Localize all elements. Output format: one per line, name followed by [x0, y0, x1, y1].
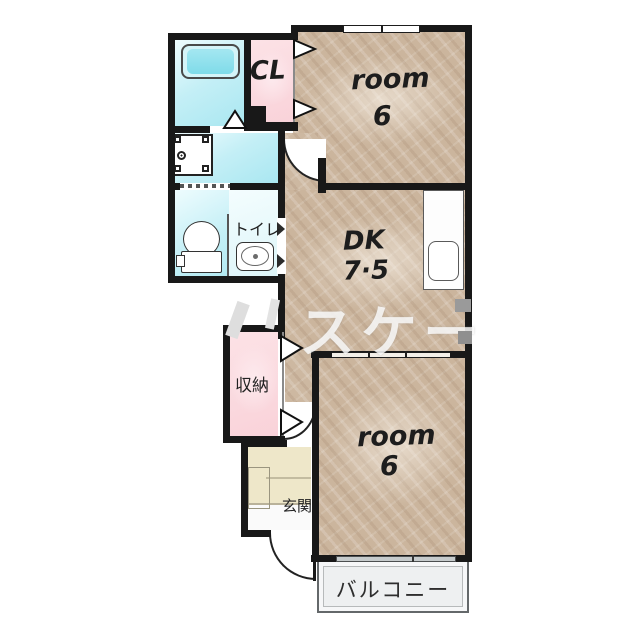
- bathtub-inner: [187, 49, 234, 74]
- shoe-cabinet: [248, 467, 270, 509]
- bathroom-door-icon: [223, 110, 248, 130]
- wall: [291, 25, 298, 40]
- wall: [168, 33, 175, 283]
- closet-folding-door-icon: [293, 99, 318, 120]
- washing-machine-tab: [174, 136, 181, 143]
- dk-label: DK: [342, 225, 385, 256]
- washing-machine-tab: [202, 136, 209, 143]
- wall: [168, 276, 285, 283]
- wall: [241, 530, 271, 537]
- kitchen-sink: [428, 241, 459, 281]
- storage-label: 収納: [235, 371, 269, 396]
- wall: [230, 183, 285, 190]
- toilet-flush-handle: [176, 255, 185, 267]
- wall: [318, 183, 472, 190]
- floor-plan: バルコニー: [0, 0, 640, 640]
- closet-folding-door-icon: [293, 39, 318, 60]
- toilet-label: トイレ: [233, 216, 281, 240]
- room-top-size: 6: [372, 101, 392, 133]
- watermark-fragment: [455, 299, 471, 312]
- watermark-fragment: [458, 331, 472, 344]
- front-door-swing: [269, 533, 316, 580]
- room-top-label: room: [350, 63, 430, 97]
- wall: [278, 124, 285, 218]
- closet-label: CL: [249, 55, 286, 86]
- toilet-tank: [181, 251, 222, 273]
- toilet-partition: [227, 214, 229, 276]
- wall: [241, 440, 248, 537]
- wall: [312, 351, 319, 562]
- balcony-sliding-window-tick: [412, 555, 414, 562]
- wall: [223, 325, 230, 443]
- dk-size: 7·5: [342, 255, 389, 287]
- wash-basin-drain: [253, 254, 258, 259]
- washing-machine-door-icon: [177, 151, 186, 160]
- entrance-label: 玄関: [282, 495, 312, 516]
- balcony-sliding-window: [336, 556, 456, 562]
- washing-machine-tab: [174, 165, 181, 172]
- room-bottom-label: room: [356, 420, 436, 454]
- entrance-step-line: [266, 477, 311, 479]
- wall: [168, 33, 298, 40]
- room-bottom-size: 6: [379, 451, 399, 483]
- storage-folding-door-icon: [280, 409, 305, 437]
- washroom-sliding-door: [180, 184, 230, 188]
- balcony-label: バルコニー: [336, 574, 451, 604]
- room-top-window-tick: [381, 25, 383, 33]
- washing-machine-tab: [202, 165, 209, 172]
- balcony: バルコニー: [317, 560, 469, 613]
